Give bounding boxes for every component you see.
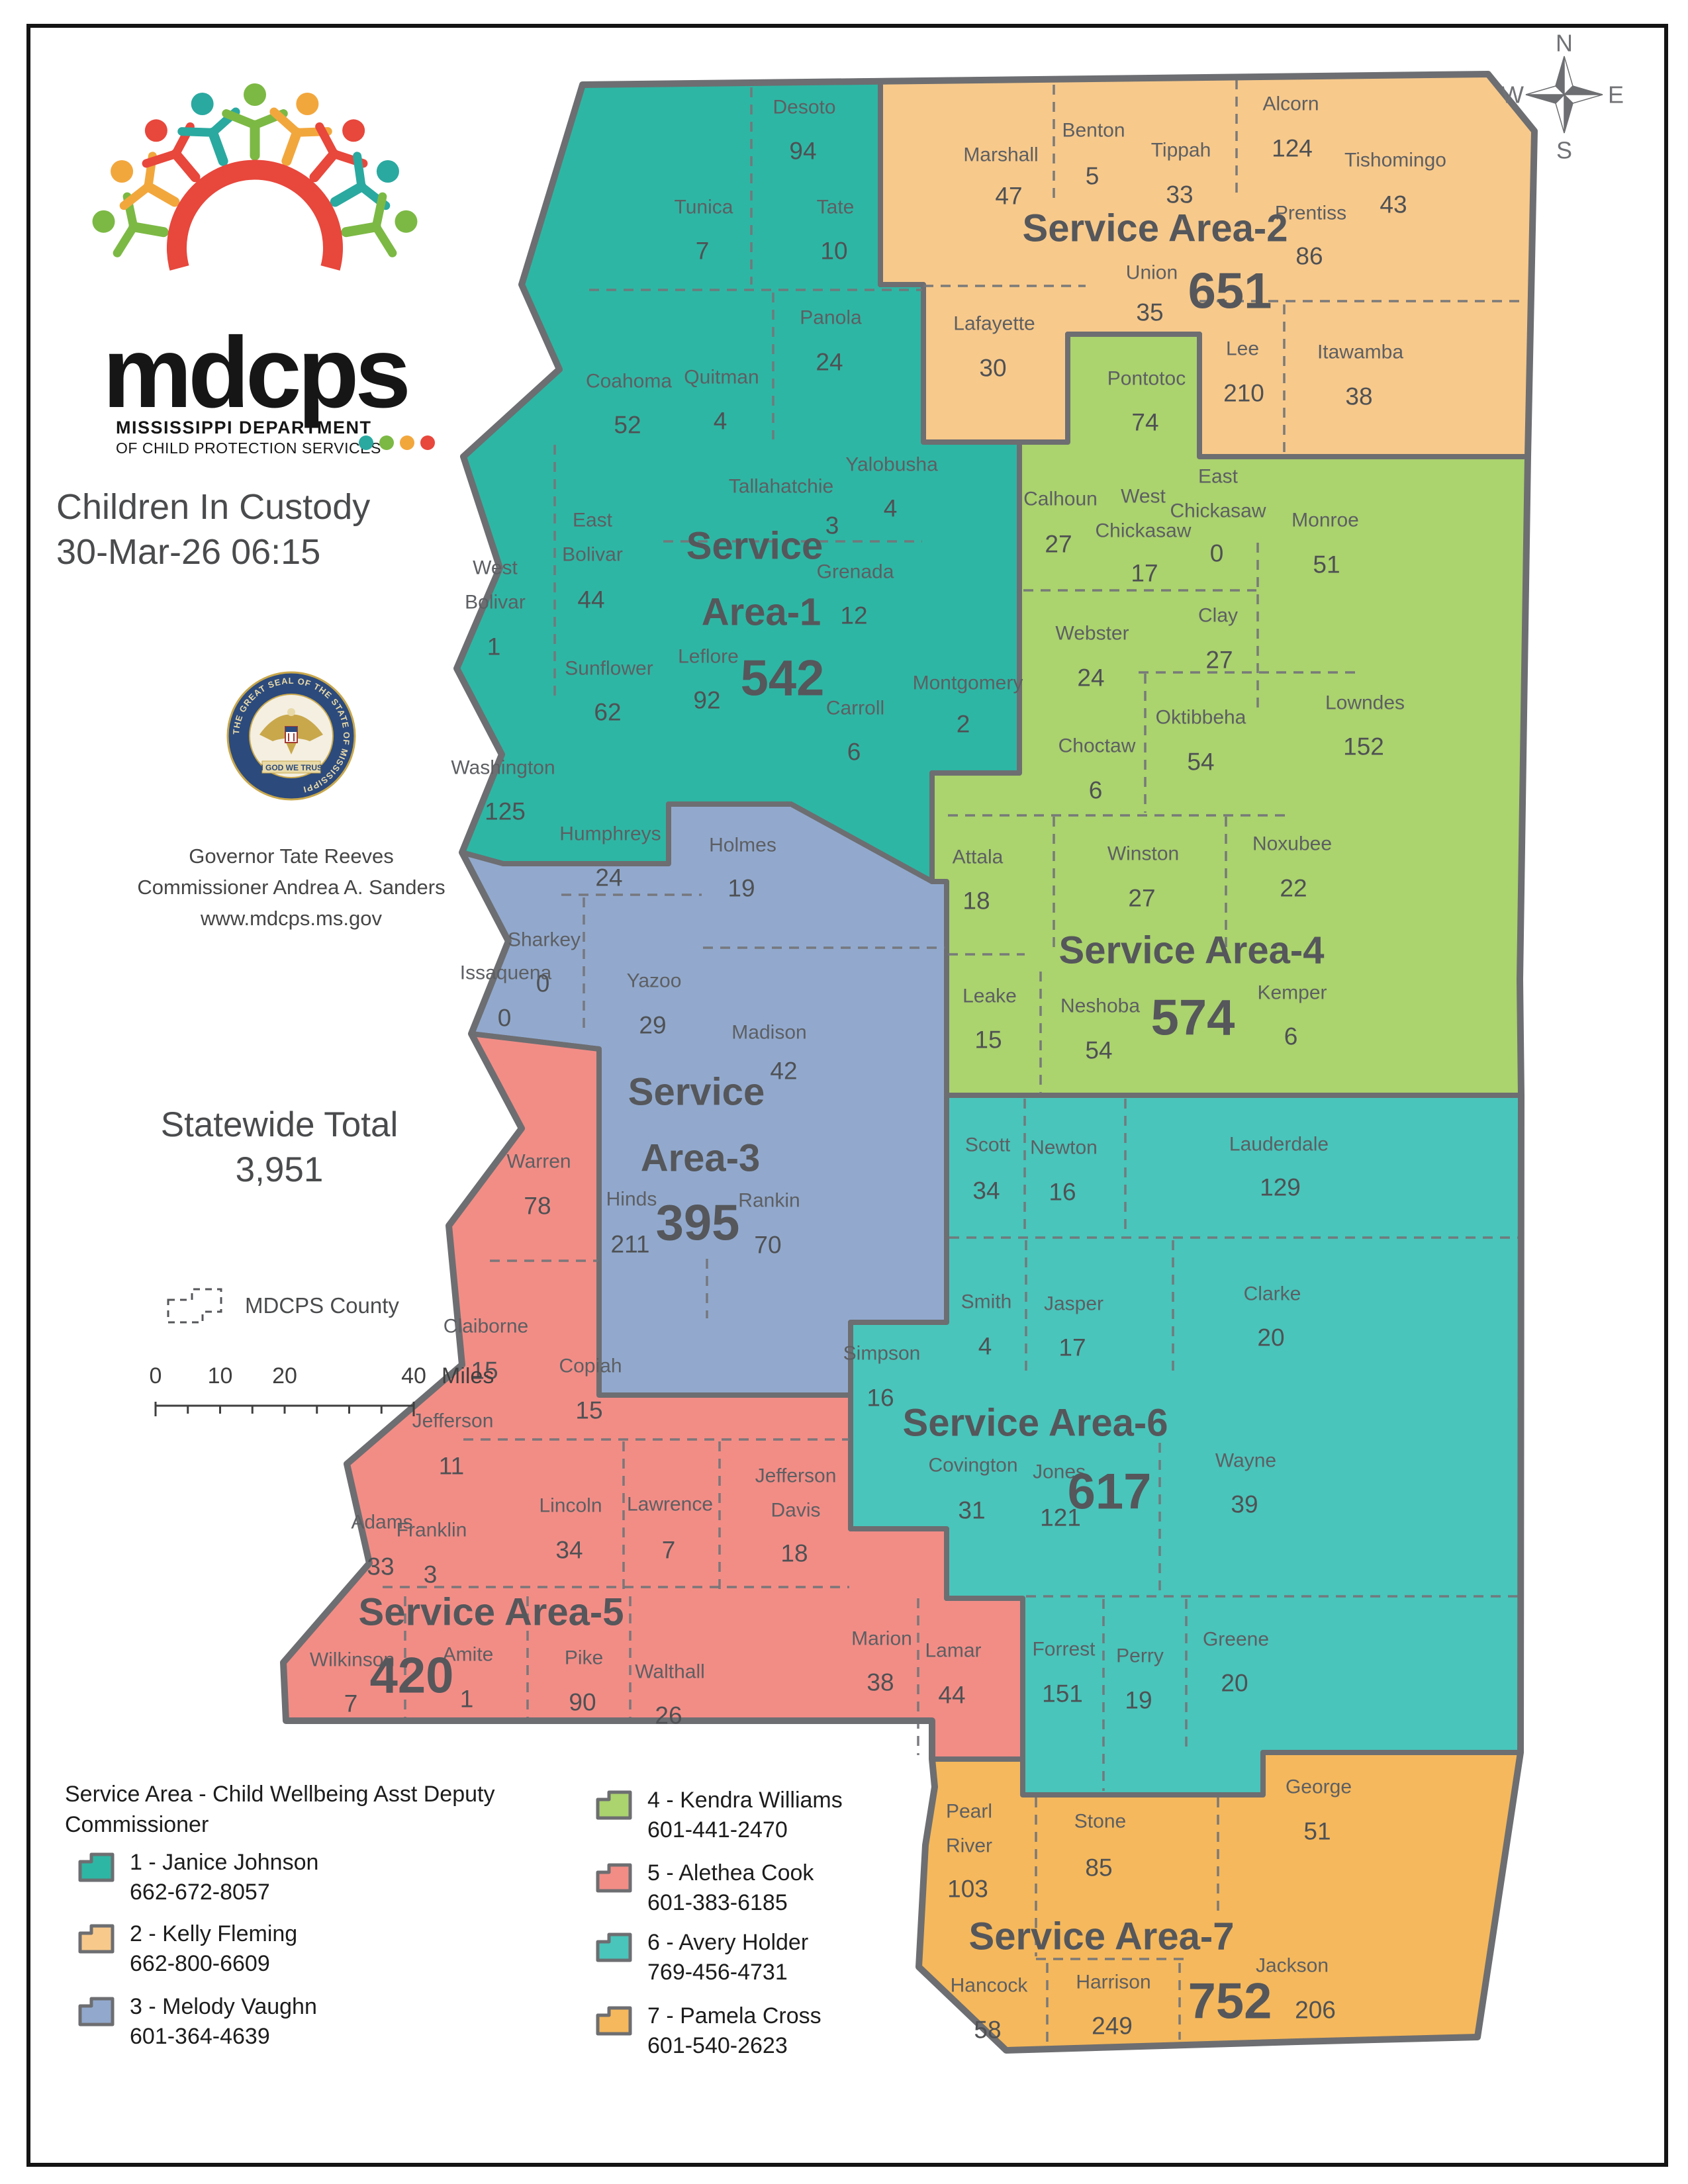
legend-item-label: 6 - Avery Holder xyxy=(647,1928,808,1958)
legend-item-label: 1 - Janice Johnson xyxy=(130,1848,318,1878)
page: Desoto94Tunica7Tate10Coahoma52Quitman4Pa… xyxy=(0,0,1688,2184)
legend-item-1: 1 - Janice Johnson662-672-8057 xyxy=(78,1848,318,1907)
legend-swatch xyxy=(596,1932,633,1962)
logo-dots xyxy=(359,435,435,450)
scale-tick-label: 10 xyxy=(208,1367,233,1388)
mdcps-logo: mdcps MISSISSIPPI DEPARTMENT OF CHILD PR… xyxy=(56,36,480,473)
legend-item-phone: 601-383-6185 xyxy=(647,1888,814,1918)
scale-unit: Miles xyxy=(442,1367,493,1388)
legend-item-5: 5 - Alethea Cook601-383-6185 xyxy=(596,1858,814,1918)
scale-tick-label: 40 xyxy=(401,1367,426,1388)
logo-dot xyxy=(359,435,373,450)
legend-item-phone: 769-456-4731 xyxy=(647,1958,808,1987)
legend-item-label: 3 - Melody Vaughn xyxy=(130,1992,317,2022)
logo-wordmark: mdcps xyxy=(103,316,407,429)
statewide-total-label: Statewide Total xyxy=(81,1103,478,1148)
legend-item-7: 7 - Pamela Cross601-540-2623 xyxy=(596,2001,821,2061)
legend-swatch xyxy=(78,1996,115,2026)
legend-swatch xyxy=(78,1923,115,1954)
legend-item-4: 4 - Kendra Williams601-441-2470 xyxy=(596,1786,843,1845)
logo-person-icon xyxy=(346,197,418,253)
legend-item-3: 3 - Melody Vaughn601-364-4639 xyxy=(78,1992,317,2052)
legend-item-label: 7 - Pamela Cross xyxy=(647,2001,821,2031)
compass-w: W xyxy=(1503,81,1524,109)
compass-rose: NESW xyxy=(1503,26,1628,169)
logo-tagline-2: OF CHILD PROTECTION SERVICES xyxy=(116,439,381,457)
logo-arc xyxy=(177,170,333,268)
legend-item-phone: 662-672-8057 xyxy=(130,1878,318,1907)
legend-item-phone: 601-540-2623 xyxy=(647,2031,821,2061)
page-title: Children In Custody xyxy=(56,486,370,527)
legend-item-label: 4 - Kendra Williams xyxy=(647,1786,843,1815)
county-key-label: MDCPS County xyxy=(245,1293,399,1318)
logo-person-icon xyxy=(226,83,283,156)
agency-info: Governor Tate Reeves Commissioner Andrea… xyxy=(79,841,503,934)
compass-s: S xyxy=(1556,137,1572,164)
statewide-total-value: 3,951 xyxy=(81,1148,478,1193)
seal-banner-text: IN GOD WE TRUST xyxy=(256,763,328,772)
governor-line: Governor Tate Reeves xyxy=(79,841,503,872)
legend-item-phone: 601-441-2470 xyxy=(647,1815,843,1845)
legend-item-phone: 662-800-6609 xyxy=(130,1949,297,1979)
legend-item-label: 5 - Alethea Cook xyxy=(647,1858,814,1888)
legend-item-phone: 601-364-4639 xyxy=(130,2022,317,2052)
legend-item-6: 6 - Avery Holder769-456-4731 xyxy=(596,1928,808,1987)
legend-swatch xyxy=(78,1852,115,1882)
logo-tagline-1: MISSISSIPPI DEPARTMENT xyxy=(116,418,372,437)
scale-tick-label: 20 xyxy=(272,1367,297,1388)
commissioner-line: Commissioner Andrea A. Sanders xyxy=(79,872,503,903)
compass-e: E xyxy=(1608,81,1624,109)
compass-n: N xyxy=(1556,30,1573,57)
scale-tick-label: 0 xyxy=(150,1367,162,1388)
logo-dot xyxy=(379,435,394,450)
legend-swatch xyxy=(596,2005,633,2036)
logo-dot xyxy=(400,435,414,450)
legend-swatch xyxy=(596,1790,633,1820)
legend-title: Service Area - Child Wellbeing Asst Depu… xyxy=(65,1779,528,1840)
legend-swatch xyxy=(596,1862,633,1893)
legend-item-label: 2 - Kelly Fleming xyxy=(130,1919,297,1949)
report-datetime: 30-Mar-26 06:15 xyxy=(56,531,320,572)
county-key: MDCPS County xyxy=(165,1285,399,1326)
legend-item-2: 2 - Kelly Fleming662-800-6609 xyxy=(78,1919,297,1979)
website-line: www.mdcps.ms.gov xyxy=(79,903,503,934)
state-seal: THE GREAT SEAL OF THE STATE OF MISSISSIP… xyxy=(225,670,357,802)
scale-bar: 0102040Miles xyxy=(149,1367,493,1420)
logo-dot xyxy=(420,435,435,450)
statewide-total: Statewide Total 3,951 xyxy=(81,1103,478,1193)
county-outline-icon xyxy=(165,1285,232,1326)
